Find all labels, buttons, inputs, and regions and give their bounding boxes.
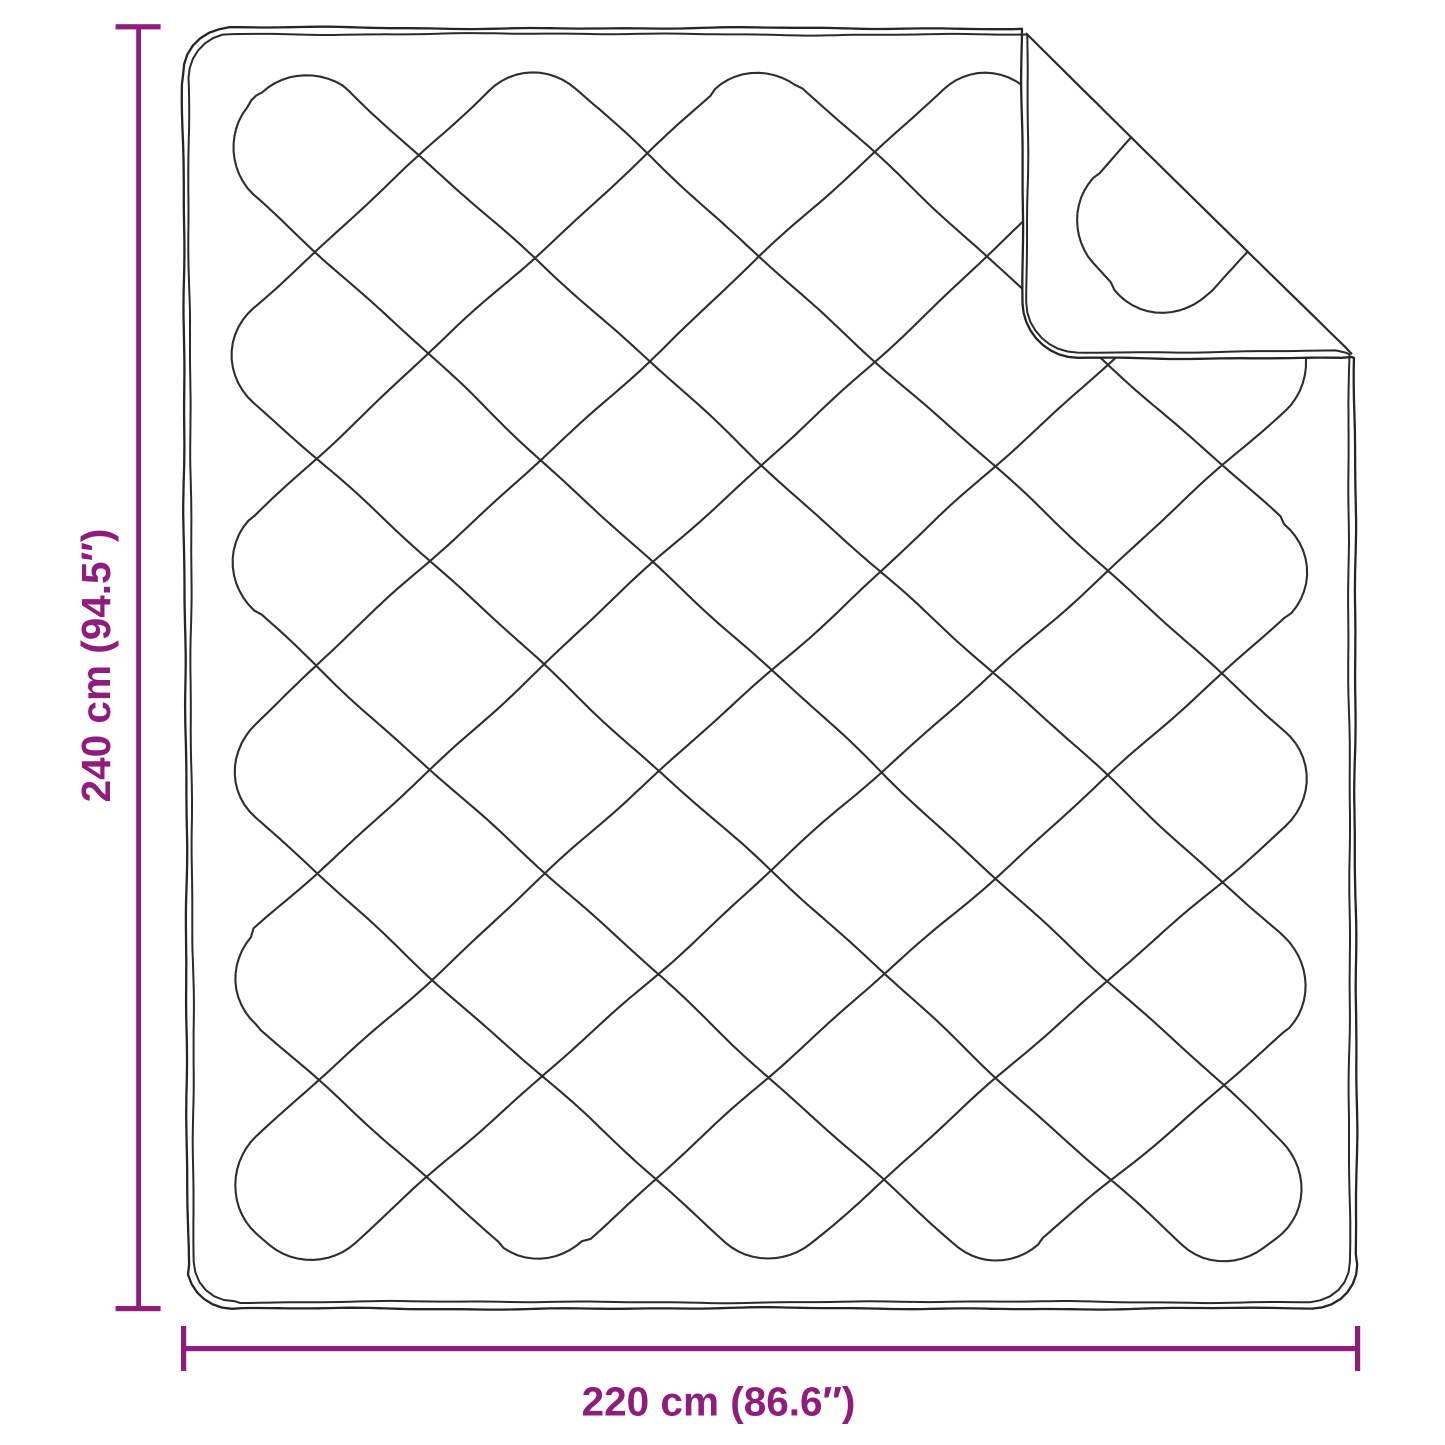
svg-text:240 cm (94.5″): 240 cm (94.5″) [73,529,119,803]
svg-text:220 cm (86.6″): 220 cm (86.6″) [582,1379,856,1425]
